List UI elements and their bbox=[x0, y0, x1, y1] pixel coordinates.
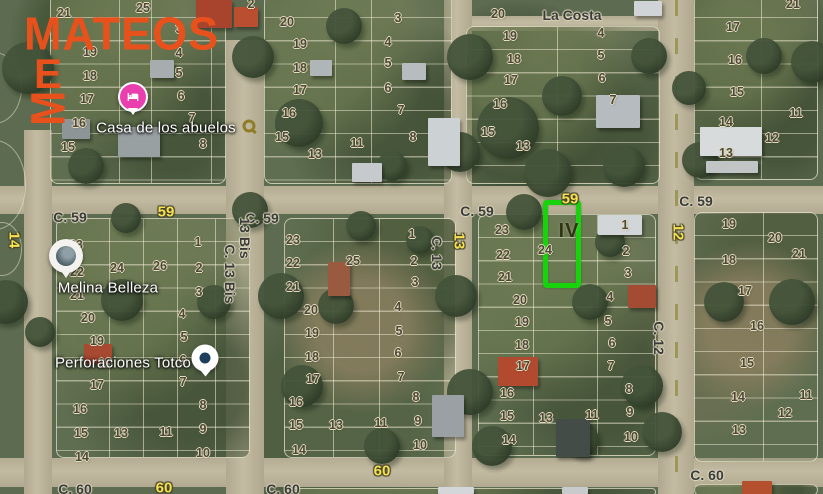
lot-number-label: 24 bbox=[538, 244, 552, 257]
lot-number-label: 9 bbox=[200, 423, 207, 436]
lot-number-label: 13 bbox=[539, 412, 553, 425]
pin-glyph bbox=[56, 246, 76, 266]
lot-number-label: 3 bbox=[395, 12, 402, 25]
lot-number-label: 16 bbox=[493, 98, 507, 111]
lot-number-label: 16 bbox=[73, 403, 87, 416]
route-number-badge: 59 bbox=[562, 192, 579, 207]
brand-logo-mark: E M bbox=[26, 57, 70, 126]
lot-number-label: 20 bbox=[491, 8, 505, 21]
pin-pointer bbox=[200, 371, 210, 377]
lot-number-label: 15 bbox=[481, 126, 495, 139]
poi-label[interactable]: Melina Belleza bbox=[58, 281, 158, 296]
street-name-label: C. 60 bbox=[266, 482, 299, 494]
lot-number-label: 12 bbox=[778, 407, 792, 420]
lot-number-label: 14 bbox=[75, 451, 89, 464]
lot-number-label: 4 bbox=[179, 308, 186, 321]
lot-number-label: 5 bbox=[598, 49, 605, 62]
street-name-label: C. 12 bbox=[652, 321, 666, 354]
lot-number-label: 21 bbox=[498, 271, 512, 284]
lot-number-label: 4 bbox=[385, 36, 392, 49]
lot-number-label: 8 bbox=[626, 383, 633, 396]
business-pin-perforaciones-totco[interactable] bbox=[192, 345, 219, 372]
street-name-label: C. 59 bbox=[53, 210, 86, 224]
lot-number-label: 13 bbox=[308, 148, 322, 161]
lot-number-label: 11 bbox=[789, 107, 802, 120]
lot-number-label: 5 bbox=[605, 315, 612, 328]
street-name-label: C. 13 Bis bbox=[223, 244, 237, 303]
brand-watermark: MATEOS E M bbox=[24, 10, 219, 126]
route-number-badge: 12 bbox=[671, 224, 686, 241]
lot-number-label: 12 bbox=[765, 132, 779, 145]
lot-number-label: 19 bbox=[503, 30, 517, 43]
lot-number-label: 3 bbox=[196, 286, 203, 299]
lot-number-label: 20 bbox=[768, 232, 782, 245]
lot-number-label: 7 bbox=[610, 94, 617, 107]
route-number-badge: 14 bbox=[7, 232, 22, 249]
lot-number-label: 18 bbox=[293, 62, 307, 75]
lot-number-label: 13 bbox=[114, 427, 128, 440]
lot-number-label: 6 bbox=[395, 347, 402, 360]
lot-number-label: 13 bbox=[732, 424, 746, 437]
lot-number-label: 5 bbox=[396, 325, 403, 338]
lot-number-label: 11 bbox=[799, 389, 812, 402]
street-name-label: La Costa bbox=[542, 8, 601, 22]
lot-number-label: 7 bbox=[608, 360, 615, 373]
street-name-label: C. 60 bbox=[58, 482, 91, 494]
street-name-label: C. 60 bbox=[690, 468, 723, 482]
lot-number-label: 2 bbox=[248, 0, 255, 10]
lot-number-label: 17 bbox=[293, 84, 307, 97]
lot-number-label: 20 bbox=[280, 16, 294, 29]
lot-number-label: 3 bbox=[412, 276, 419, 289]
lot-number-label: 18 bbox=[507, 53, 521, 66]
lot-number-label: 19 bbox=[293, 38, 307, 51]
route-number-badge: 13 bbox=[452, 233, 467, 250]
lot-number-label: 10 bbox=[624, 431, 638, 444]
lot-number-label: 11 bbox=[350, 137, 363, 150]
lot-number-label: 20 bbox=[81, 312, 95, 325]
lot-number-label: 1 bbox=[409, 228, 416, 241]
lot-number-label: 4 bbox=[607, 291, 614, 304]
lot-number-label: 16 bbox=[750, 320, 764, 333]
lot-number-label: 15 bbox=[730, 86, 744, 99]
lot-number-label: 13 bbox=[516, 140, 530, 153]
lot-number-label: 15 bbox=[275, 131, 289, 144]
lot-number-label: 2 bbox=[623, 245, 630, 258]
lot-number-label: 17 bbox=[504, 74, 518, 87]
lot-number-label: 10 bbox=[196, 447, 210, 460]
lot-number-label: 10 bbox=[413, 439, 427, 452]
lot-number-label: 14 bbox=[502, 434, 516, 447]
lot-number-label: 21 bbox=[792, 248, 806, 261]
lot-number-label: 17 bbox=[726, 21, 740, 34]
lot-number-label: 8 bbox=[410, 131, 417, 144]
lot-number-label: 17 bbox=[738, 285, 752, 298]
lot-number-label: 18 bbox=[515, 339, 529, 352]
street-name-label: C. 59 bbox=[460, 204, 493, 218]
lot-number-label: 6 bbox=[385, 82, 392, 95]
lot-number-label: 7 bbox=[180, 376, 187, 389]
business-pin-melina-belleza[interactable] bbox=[49, 239, 83, 273]
lot-number-label: 8 bbox=[200, 138, 207, 151]
lot-number-label: 16 bbox=[728, 54, 742, 67]
lot-number-label: 24 bbox=[110, 262, 124, 275]
satellite-map[interactable]: 2125219181716153456782019181716151334567… bbox=[0, 0, 823, 494]
lot-number-label: 1 bbox=[622, 219, 629, 232]
lot-number-label: 15 bbox=[74, 427, 88, 440]
route-number-badge: 59 bbox=[158, 205, 175, 220]
lot-number-label: 18 bbox=[722, 254, 736, 267]
lot-number-label: 16 bbox=[500, 387, 514, 400]
lot-number-label: 2 bbox=[411, 255, 418, 268]
lot-number-label: 9 bbox=[415, 415, 422, 428]
pin-dot bbox=[200, 353, 211, 364]
lot-number-label: 16 bbox=[289, 396, 303, 409]
street-name-label: C. 59 bbox=[679, 194, 712, 208]
lot-number-label: 6 bbox=[609, 337, 616, 350]
brand-mark-letter: M bbox=[28, 91, 68, 126]
lot-number-label: 6 bbox=[599, 72, 606, 85]
lot-number-label: 8 bbox=[200, 399, 207, 412]
lot-number-label: 11 bbox=[159, 426, 172, 439]
lot-number-label: 14 bbox=[292, 444, 306, 457]
lot-number-label: 25 bbox=[346, 255, 360, 268]
lot-number-label: 19 bbox=[90, 335, 104, 348]
lot-number-label: 17 bbox=[90, 379, 104, 392]
lot-number-label: 21 bbox=[786, 0, 800, 10]
small-poi-icon[interactable] bbox=[243, 120, 256, 133]
lot-number-label: 22 bbox=[496, 249, 510, 262]
lot-number-label: 11 bbox=[374, 417, 387, 430]
lot-number-label: 7 bbox=[398, 104, 405, 117]
lot-number-label: 2 bbox=[196, 262, 203, 275]
lot-number-label: 9 bbox=[627, 406, 634, 419]
route-number-badge: 60 bbox=[374, 464, 391, 479]
lot-number-label: 19 bbox=[305, 327, 319, 340]
lot-number-label: 19 bbox=[515, 316, 529, 329]
lot-number-label: 20 bbox=[513, 294, 527, 307]
lot-number-label: 23 bbox=[495, 224, 509, 237]
lot-number-label: 23 bbox=[286, 234, 300, 247]
lot-number-label: 21 bbox=[286, 281, 300, 294]
brand-mark-letter: E bbox=[34, 57, 62, 91]
lot-number-label: 15 bbox=[289, 419, 303, 432]
poi-label[interactable]: Perforaciones Totco bbox=[55, 356, 191, 371]
pin-pointer bbox=[61, 271, 71, 278]
lot-number-label: 15 bbox=[740, 357, 754, 370]
street-name-label: C. 13 bbox=[430, 236, 444, 269]
lot-number-label: 26 bbox=[153, 260, 167, 273]
lot-number-label: 3 bbox=[625, 267, 632, 280]
lot-number-label: 8 bbox=[413, 391, 420, 404]
lot-number-label: 13 bbox=[719, 147, 733, 160]
brand-name: MATEOS bbox=[24, 10, 219, 57]
lot-number-label: 5 bbox=[181, 331, 188, 344]
lot-number-label: 7 bbox=[398, 371, 405, 384]
lot-number-label: 13 bbox=[329, 419, 343, 432]
lot-number-label: 20 bbox=[304, 304, 318, 317]
lot-number-label: 4 bbox=[395, 301, 402, 314]
lot-number-label: 15 bbox=[61, 141, 75, 154]
lot-number-label: 18 bbox=[305, 351, 319, 364]
lot-number-label: 16 bbox=[282, 107, 296, 120]
route-number-badge: 60 bbox=[156, 481, 173, 494]
lot-number-label: 19 bbox=[722, 218, 736, 231]
lot-number-label: 15 bbox=[500, 410, 514, 423]
lot-number-label: 17 bbox=[306, 373, 320, 386]
lot-number-label: 4 bbox=[598, 27, 605, 40]
street-name-label: 13 Bis bbox=[238, 217, 252, 258]
lot-number-label: 17 bbox=[516, 360, 530, 373]
lot-number-label: 14 bbox=[719, 116, 733, 129]
highlight-roman-label: IV bbox=[559, 221, 580, 241]
lot-number-label: 22 bbox=[286, 257, 300, 270]
lot-number-label: 1 bbox=[195, 236, 202, 249]
lot-number-label: 11 bbox=[585, 409, 598, 422]
lot-number-label: 14 bbox=[731, 391, 745, 404]
lot-number-label: 5 bbox=[385, 57, 392, 70]
